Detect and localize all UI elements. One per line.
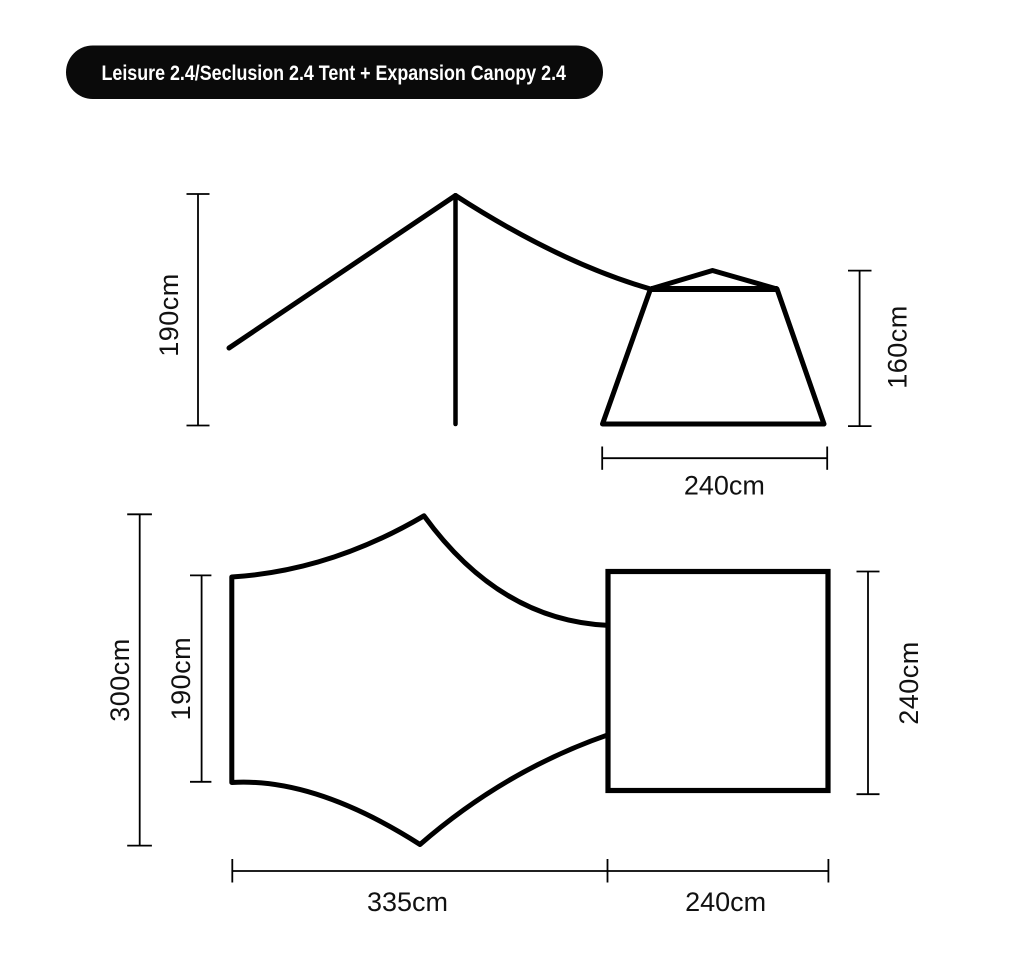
svg-text:190cm: 190cm [154, 273, 184, 357]
svg-text:335cm: 335cm [367, 887, 448, 917]
svg-text:240cm: 240cm [894, 641, 924, 725]
svg-text:300cm: 300cm [105, 638, 135, 722]
svg-text:Leisure 2.4/Seclusion 2.4 Tent: Leisure 2.4/Seclusion 2.4 Tent + Expansi… [102, 62, 567, 85]
svg-text:160cm: 160cm [883, 305, 913, 389]
svg-text:240cm: 240cm [685, 887, 766, 917]
svg-text:240cm: 240cm [684, 471, 765, 501]
svg-text:190cm: 190cm [166, 637, 196, 721]
